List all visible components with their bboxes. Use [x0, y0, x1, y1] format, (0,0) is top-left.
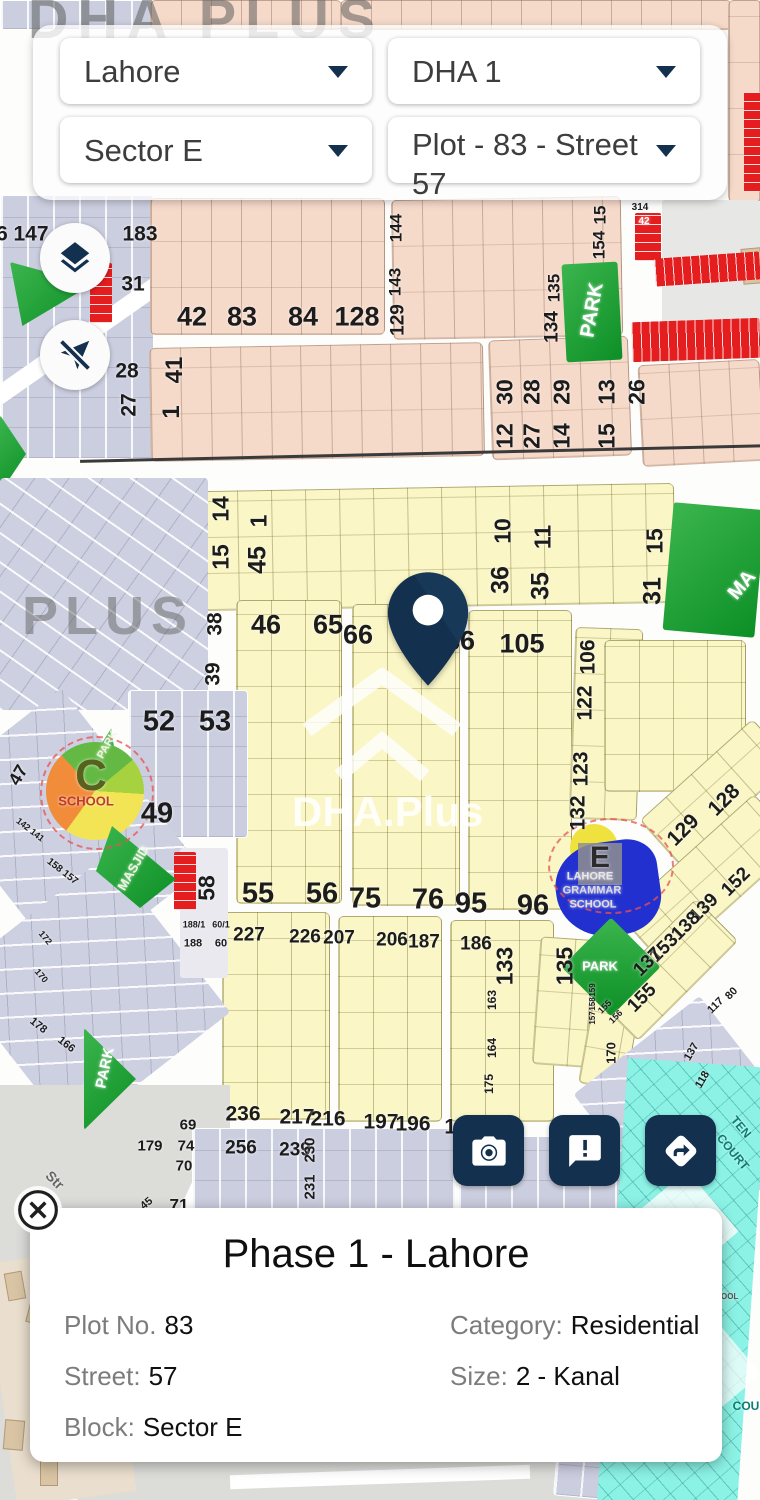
plot-info-card: Phase 1 - Lahore Plot No.83 Category:Res… — [30, 1208, 722, 1462]
directions-icon — [661, 1131, 701, 1171]
chevron-down-icon — [656, 66, 676, 78]
map-pin-icon — [383, 570, 473, 688]
sector-dropdown[interactable]: Sector E — [60, 117, 372, 183]
map-block — [0, 478, 208, 710]
plot-dropdown[interactable]: Plot - 83 - Street 57 — [388, 117, 700, 183]
my-location-button[interactable] — [40, 320, 110, 390]
directions-button[interactable] — [645, 1115, 716, 1186]
sector-dropdown-value: Sector E — [84, 131, 324, 170]
location-disabled-icon — [56, 336, 94, 374]
app-screen: DHA PLUS PLUS DHA.Plus 61471833128274283… — [0, 0, 760, 1500]
chevron-down-icon — [328, 66, 348, 78]
highlight-ring — [548, 818, 674, 914]
city-dropdown[interactable]: Lahore — [60, 38, 372, 104]
map-block — [631, 318, 760, 362]
map-block — [338, 916, 442, 1122]
layers-button[interactable] — [40, 223, 110, 293]
search-panel: Lahore DHA 1 Sector E Plot - 83 - Street… — [33, 25, 727, 200]
park-area — [561, 262, 622, 363]
plot-info-title: Phase 1 - Lahore — [30, 1232, 722, 1277]
park-area — [663, 502, 760, 638]
feedback-button[interactable] — [549, 1115, 620, 1186]
close-info-card-button[interactable] — [14, 1186, 62, 1234]
block-field: Block:Sector E — [64, 1412, 243, 1443]
category-field: Category:Residential — [450, 1310, 699, 1341]
map-block — [150, 198, 385, 335]
layers-icon — [56, 239, 94, 277]
size-field: Size:2 - Kanal — [450, 1361, 620, 1392]
phase-dropdown-value: DHA 1 — [412, 52, 652, 91]
city-dropdown-value: Lahore — [84, 52, 324, 91]
street-field: Street:57 — [64, 1361, 178, 1392]
highlight-ring — [40, 736, 154, 850]
camera-icon — [469, 1131, 509, 1171]
feedback-icon — [566, 1132, 604, 1170]
map-block — [222, 912, 330, 1120]
map-block — [637, 359, 760, 467]
chevron-down-icon — [656, 145, 676, 157]
chevron-down-icon — [328, 145, 348, 157]
map-block — [3, 1419, 26, 1451]
plot-number-field: Plot No.83 — [64, 1310, 193, 1341]
map-block — [744, 92, 760, 192]
map-block — [149, 342, 485, 462]
map-block — [40, 1460, 58, 1486]
map-block — [174, 852, 196, 910]
camera-button[interactable] — [453, 1115, 524, 1186]
phase-dropdown[interactable]: DHA 1 — [388, 38, 700, 104]
plot-dropdown-value: Plot - 83 - Street 57 — [412, 125, 652, 200]
map-block — [635, 213, 661, 261]
close-icon — [16, 1188, 60, 1232]
